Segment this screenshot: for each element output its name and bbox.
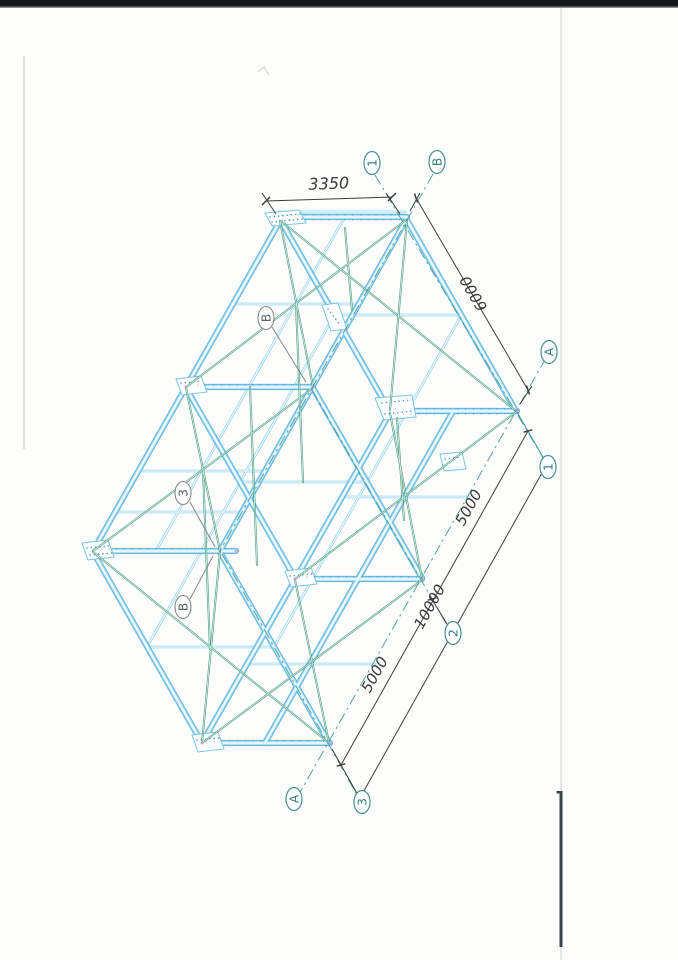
scan-artifacts [0,0,678,960]
svg-text:B: B [430,158,445,167]
dim-text-6000: 6000 [456,273,491,315]
grid-bubble-3-internal: 3 [175,482,191,505]
axonometric-frame-drawing: 3350 6000 5000 5000 10000 1 B [0,0,678,960]
scan-top-bar [0,0,678,7]
grid-bubble-1-right: 1 [540,456,556,479]
svg-text:B: B [176,603,191,612]
svg-text:A: A [287,794,302,803]
internal-leader-b-upper [272,327,306,382]
svg-text:1: 1 [365,159,380,167]
grid-bubble-b-top: B [429,151,445,174]
grid-bubble-b-internal-upper: B [258,307,274,330]
axis-line-b [220,174,433,551]
grid-bubble-b-internal-lower: B [175,596,191,619]
grid-bubble-1-top: 1 [364,152,380,175]
scan-dark-bar-notch [557,791,561,794]
grid-bubble-2: 2 [445,622,461,645]
svg-text:3: 3 [176,489,191,497]
grid-bubble-3-bottom: 3 [354,791,370,814]
svg-text:3: 3 [355,798,370,806]
svg-text:A: A [542,347,557,356]
dim-text-5000-lower: 5000 [357,654,391,696]
svg-text:B: B [259,314,274,323]
scanned-structural-drawing: 3350 6000 5000 5000 10000 1 B [0,0,678,960]
svg-text:1: 1 [541,463,556,471]
dim-text-10000: 10000 [410,581,449,631]
grid-bubble-a-right: A [541,341,557,364]
pencil-mark [258,67,269,75]
dim-text-3350: 3350 [308,173,349,193]
scan-top-bar-edge [0,7,678,9]
grid-bubble-a-bottom: A [286,788,302,811]
scan-dark-bar [560,791,563,947]
dim-text-5000-upper: 5000 [451,487,485,529]
svg-text:2: 2 [446,629,461,637]
